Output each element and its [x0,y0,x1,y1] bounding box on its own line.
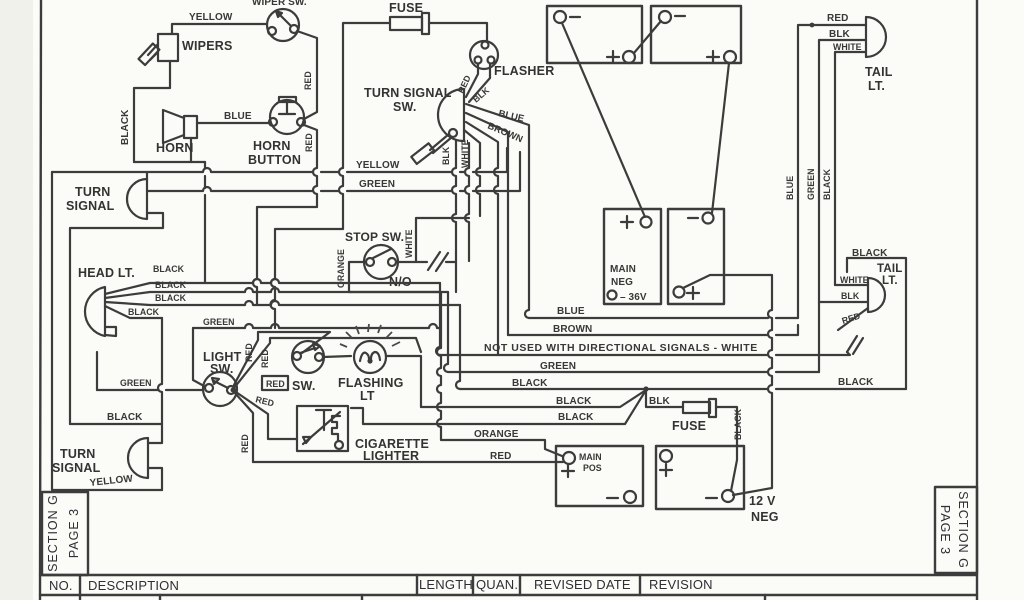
svg-text:BLACK: BLACK [556,396,592,407]
svg-text:SIGNAL: SIGNAL [52,461,101,475]
svg-text:RED: RED [490,451,511,462]
svg-text:YELLOW: YELLOW [189,12,233,23]
svg-text:FUSE: FUSE [389,1,423,15]
svg-text:BLACK: BLACK [128,307,160,317]
svg-text:WIPERS: WIPERS [182,39,233,53]
svg-text:REVISED DATE: REVISED DATE [534,577,631,592]
svg-text:LT.: LT. [868,79,885,93]
svg-text:RED: RED [260,349,270,368]
svg-text:BLK: BLK [649,396,671,407]
svg-text:FUSE: FUSE [672,419,706,433]
svg-text:GREEN: GREEN [203,317,235,327]
svg-text:BLACK: BLACK [155,293,187,303]
svg-text:TAIL: TAIL [865,65,893,79]
svg-text:BLACK: BLACK [733,408,743,440]
svg-text:BUTTON: BUTTON [248,153,301,167]
svg-text:RED: RED [240,434,250,453]
svg-text:NO.: NO. [49,578,73,593]
svg-text:NEG: NEG [751,510,779,524]
svg-text:12 V: 12 V [749,494,776,508]
svg-text:HORN: HORN [253,139,291,153]
svg-text:LENGTH: LENGTH [419,577,473,592]
svg-text:HEAD LT.: HEAD LT. [78,266,135,280]
svg-text:NEG: NEG [611,277,633,288]
svg-text:WHITE: WHITE [404,229,414,258]
svg-text:WIPER SW.: WIPER SW. [252,0,307,8]
svg-text:GREEN: GREEN [540,361,576,372]
svg-text:MAIN: MAIN [610,264,636,275]
svg-text:STOP SW.: STOP SW. [345,230,404,244]
svg-text:LT: LT [360,389,375,403]
svg-text:WHITE: WHITE [840,275,869,285]
svg-text:RED: RED [304,133,314,152]
svg-text:NOT USED WITH DIRECTIONAL SIGN: NOT USED WITH DIRECTIONAL SIGNALS - WHIT… [484,342,758,354]
svg-text:ORANGE: ORANGE [474,429,519,440]
svg-text:BLACK: BLACK [822,168,832,200]
svg-text:BLUE: BLUE [785,176,795,200]
svg-text:GREEN: GREEN [806,168,816,200]
svg-text:LT.: LT. [882,275,898,287]
svg-text:DESCRIPTION: DESCRIPTION [88,578,179,593]
svg-text:BLK: BLK [829,29,851,40]
svg-text:TURN SIGNAL: TURN SIGNAL [364,86,452,100]
svg-text:SIGNAL: SIGNAL [66,199,115,213]
svg-text:TURN: TURN [60,447,96,461]
svg-text:BROWN: BROWN [553,324,592,335]
svg-text:BLACK: BLACK [155,280,187,290]
svg-text:RED: RED [303,71,313,90]
svg-text:BLACK: BLACK [153,264,185,274]
svg-text:TAIL: TAIL [877,263,903,275]
svg-text:SECTION G: SECTION G [956,491,970,569]
svg-text:BLACK: BLACK [107,412,143,423]
svg-text:RED: RED [244,343,254,362]
svg-text:QUAN.: QUAN. [476,577,518,592]
svg-text:BLK: BLK [441,146,451,165]
svg-text:SW.: SW. [292,379,316,393]
svg-text:WHITE: WHITE [460,139,470,168]
svg-text:SECTION G: SECTION G [46,494,60,572]
svg-text:SW.: SW. [393,100,417,114]
svg-text:BLACK: BLACK [838,377,874,388]
svg-text:GREEN: GREEN [120,378,152,388]
svg-text:REVISION: REVISION [649,577,713,592]
svg-text:TURN: TURN [75,185,111,199]
svg-text:BLUE: BLUE [224,111,252,122]
svg-text:FLASHING: FLASHING [338,376,404,390]
svg-text:GREEN: GREEN [359,179,395,190]
svg-text:FLASHER: FLASHER [494,64,554,78]
svg-text:BLACK: BLACK [512,378,548,389]
svg-text:MAIN: MAIN [579,452,602,462]
svg-text:WHITE: WHITE [833,42,862,52]
svg-text:BLACK: BLACK [558,412,594,423]
svg-text:RED: RED [266,379,285,389]
svg-text:RED: RED [827,13,848,24]
svg-text:YELLOW: YELLOW [356,160,400,171]
svg-text:BLK: BLK [841,291,860,301]
svg-text:POS: POS [583,463,602,473]
svg-text:PAGE 3: PAGE 3 [67,508,81,558]
svg-text:PAGE 3: PAGE 3 [938,505,952,555]
svg-text:BLACK: BLACK [120,109,131,145]
svg-text:BLUE: BLUE [557,306,585,317]
svg-text:HORN: HORN [156,141,194,155]
svg-text:– 36V: – 36V [620,292,647,303]
